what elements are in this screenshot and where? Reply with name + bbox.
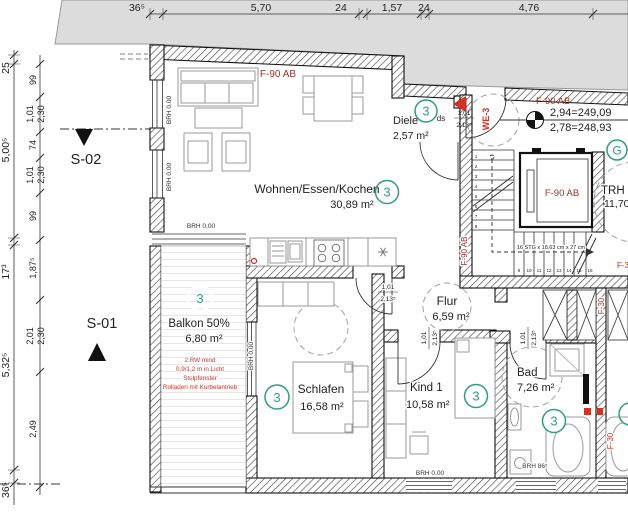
wall-nib (583, 374, 589, 404)
shaft-box (543, 290, 567, 340)
svg-text:10,58 m²: 10,58 m² (406, 399, 450, 411)
room-bad-label: Bad 7,26 m² 3 (517, 367, 566, 433)
svg-text:14: 14 (566, 268, 572, 273)
svg-text:4: 4 (475, 184, 478, 189)
dim-left-inner-4: 99 (28, 211, 38, 221)
svg-text:2,13⁵: 2,13⁵ (432, 330, 439, 346)
dim-top-0: 36⁵ (129, 2, 145, 14)
dim-left-inner-2: 74 (28, 140, 38, 150)
room-flur-label: Flur 6,59 m² (423, 283, 471, 331)
dim-left-inner-5: 1,87⁵ (28, 257, 38, 279)
dim-left-inner-1b: 2,30 (36, 105, 46, 123)
svg-text:Bad: Bad (517, 367, 537, 379)
room-wohnen-label: Wohnen/Essen/Kochen 30,89 m² 3 (254, 181, 398, 212)
dining-chair (352, 76, 363, 93)
svg-text:1: 1 (475, 154, 478, 159)
svg-text:16: 16 (587, 268, 593, 273)
bad-fixtures (502, 344, 628, 476)
section-marker-s01: S-01 (0, 316, 117, 484)
door-size-kind: 1,01 2,13⁵ (421, 327, 439, 349)
brh-label-bath: BRH 86⁵ (522, 463, 548, 470)
dim-left-outer-3: 5,32⁵ (0, 353, 12, 378)
dim-top-5: 4,76 (519, 2, 540, 14)
living-furniture (178, 68, 363, 171)
dim-top-1: 5,70 (251, 2, 272, 14)
fire-label-f90: F-90 AB (536, 96, 570, 107)
svg-text:6: 6 (475, 204, 478, 209)
svg-text:G: G (612, 144, 621, 158)
level-lower: 2,78=248,93 (550, 122, 611, 134)
svg-text:2,13⁵: 2,13⁵ (380, 296, 396, 303)
svg-text:8: 8 (475, 224, 478, 229)
fire-damper (597, 408, 603, 415)
dim-left-inner-7: 2,49 (28, 420, 38, 438)
dim-top-2: 24 (335, 2, 347, 14)
svg-text:Diele: Diele (393, 115, 418, 127)
fire-label-f30: F-30 (597, 297, 606, 314)
dim-top-3: 1,57 (382, 2, 403, 14)
window-left-1 (151, 80, 163, 128)
dim-left-outer-2: 17³ (0, 264, 12, 280)
svg-text:0,9/1,2 m in Licht: 0,9/1,2 m in Licht (176, 366, 224, 373)
level-upper: 2,94=249,09 (550, 107, 611, 119)
svg-text:9: 9 (518, 268, 521, 273)
svg-text:15: 15 (576, 268, 582, 273)
left-inner-dimension-chain: 99 1,01 2,30 74 1,01 2,30 99 1,87⁵ 2,01 … (25, 55, 46, 495)
left-outer-dimension-chain: 25 5,00⁵ 17³ 5,32⁵ 36⁵ (0, 50, 20, 505)
brh-label: BRH 0,00 (187, 223, 216, 230)
dim-left-inner-6b: 2,30 (36, 327, 46, 345)
boundary-dashes (120, 54, 148, 59)
fire-label-f90: F-90 AB (545, 188, 579, 199)
fire-label-f90: F-90 AB (260, 69, 296, 80)
svg-text:7,26 m²: 7,26 m² (517, 382, 555, 394)
stair-note: 16 STG x 18,63 cm x 27 cm (517, 245, 586, 251)
svg-text:11: 11 (537, 268, 542, 273)
svg-text:Wohnen/Essen/Kochen: Wohnen/Essen/Kochen (254, 182, 379, 196)
svg-text:Rolladen mit Kurbelantrieb: Rolladen mit Kurbelantrieb (163, 384, 238, 391)
chair (410, 432, 428, 454)
dining-table (314, 76, 352, 121)
shaft-box (608, 290, 628, 340)
svg-text:12: 12 (546, 268, 552, 273)
section-triangle-down (75, 129, 93, 146)
svg-text:11,70: 11,70 (604, 198, 628, 210)
svg-text:1,01: 1,01 (421, 331, 428, 344)
svg-text:2,13⁵: 2,13⁵ (531, 330, 538, 346)
svg-text:10: 10 (526, 268, 532, 273)
svg-text:2: 2 (475, 164, 478, 169)
svg-text:1,01: 1,01 (520, 331, 527, 344)
svg-text:5: 5 (475, 194, 478, 199)
coffee-table (195, 108, 242, 128)
svg-text:2,57 m²: 2,57 m² (393, 130, 429, 142)
section-triangle-up (88, 343, 106, 361)
nightstand (353, 401, 368, 427)
section-marker-s02: S-02 (60, 129, 150, 168)
svg-text:Flur: Flur (437, 294, 458, 308)
nightstand (353, 366, 368, 392)
dim-left-outer-0: 25 (0, 62, 12, 74)
svg-text:TRH: TRH (601, 185, 625, 197)
fire-label-f30: F-30 (617, 261, 628, 270)
wardrobe (386, 358, 406, 458)
svg-text:3: 3 (475, 174, 478, 179)
bed-double (293, 362, 353, 433)
dim-left-outer-1: 5,00⁵ (0, 138, 12, 163)
svg-text:7: 7 (475, 214, 478, 219)
section-label-s01: S-01 (87, 316, 118, 332)
svg-text:Balkon 50%: Balkon 50% (168, 318, 229, 330)
svg-text:3: 3 (550, 414, 557, 429)
brh-label: BRH 0,00 (166, 163, 173, 192)
svg-text:16,58 m²: 16,58 m² (300, 401, 344, 413)
svg-text:Kind 1: Kind 1 (410, 382, 443, 394)
brh-label: BRH 0,00 (248, 342, 255, 371)
dim-top-4: 24 (418, 2, 430, 14)
svg-text:3: 3 (383, 185, 390, 200)
window-kind-south (406, 479, 452, 492)
svg-text:30,89 m²: 30,89 m² (330, 199, 374, 211)
svg-text:3: 3 (423, 105, 430, 119)
door-diele (420, 142, 458, 180)
svg-text:Schlafen: Schlafen (298, 382, 345, 396)
svg-text:1,01: 1,01 (382, 284, 395, 291)
svg-text:2.RW mind: 2.RW mind (184, 357, 216, 364)
fire-damper (584, 408, 591, 415)
svg-text:3: 3 (196, 291, 203, 306)
dim-left-inner-1a: 1,01 (25, 105, 35, 123)
section-label-s02: S-02 (71, 152, 102, 168)
brh-label: BRH 0,00 (416, 470, 445, 477)
svg-text:3: 3 (273, 390, 280, 405)
dim-left-inner-3a: 1,01 (25, 166, 35, 184)
window-left-2 (151, 150, 163, 198)
dining-chair (303, 76, 314, 93)
window-neighbor-south (598, 479, 626, 492)
window-bad-south (516, 479, 556, 492)
svg-text:Stulpfenster: Stulpfenster (183, 375, 217, 382)
kitchen-counter (250, 238, 396, 266)
door-size-bad: 1,01 2,13⁵ (520, 327, 538, 349)
room-diele-label: Diele 2,57 m² 3 (393, 100, 437, 142)
dim-left-inner-3b: 2,30 (36, 166, 46, 184)
fire-label-f30: F-30 (606, 432, 615, 449)
shaft-box (577, 290, 596, 340)
floor-plan-svg: 36⁵ 5,70 24 1,57 24 4,76 25 5,00⁵ 17³ 5,… (0, 0, 628, 520)
svg-text:6,80 m²: 6,80 m² (185, 333, 223, 345)
dim-left-inner-6a: 2,01 (25, 327, 35, 345)
door-ds-label: ds (437, 114, 445, 123)
fire-label-f90: F-90 AB (460, 237, 469, 266)
brh-label: BRH 0,00 (166, 96, 173, 125)
shafts (543, 290, 628, 340)
svg-text:13: 13 (556, 268, 562, 273)
svg-text:2,13⁵: 2,13⁵ (456, 122, 472, 129)
clearance-circle (294, 301, 348, 355)
entry-unit-label: WE-3 (481, 108, 491, 131)
floor-plan-page: 36⁵ 5,70 24 1,57 24 4,76 25 5,00⁵ 17³ 5,… (0, 0, 628, 520)
svg-text:6,59 m²: 6,59 m² (432, 311, 470, 323)
window-living-south (152, 234, 246, 244)
dim-left-inner-0: 99 (28, 75, 38, 85)
wardrobe (258, 282, 334, 306)
svg-text:3: 3 (472, 389, 479, 404)
unit-g-circle: G (607, 140, 627, 160)
svg-text:1,01: 1,01 (458, 110, 471, 117)
